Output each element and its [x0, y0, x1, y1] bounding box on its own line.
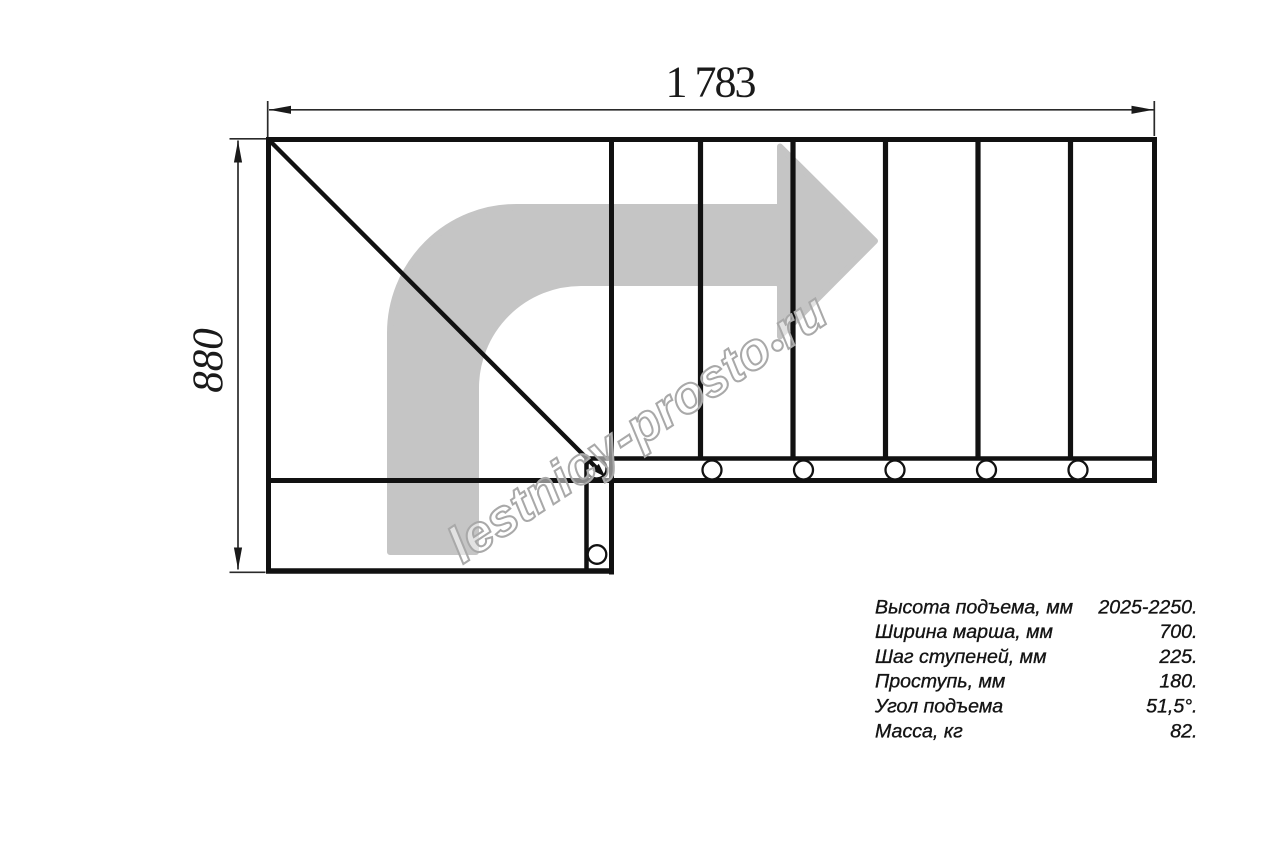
svg-text:Масса, кг: Масса, кг	[875, 720, 963, 742]
svg-text:51,5°.: 51,5°.	[1146, 696, 1197, 718]
svg-text:Ширина марша, мм: Ширина марша, мм	[875, 621, 1054, 643]
svg-text:Шаг ступеней, мм: Шаг ступеней, мм	[875, 646, 1047, 668]
svg-text:82.: 82.	[1170, 720, 1197, 742]
svg-text:2025-2250.: 2025-2250.	[1097, 596, 1197, 618]
svg-text:700.: 700.	[1159, 621, 1197, 643]
svg-text:Угол подъема: Угол подъема	[874, 696, 1003, 718]
svg-text:Проступь, мм: Проступь, мм	[875, 671, 1006, 693]
svg-text:Высота подъема, мм: Высота подъема, мм	[875, 596, 1074, 618]
svg-text:880: 880	[185, 328, 232, 393]
svg-text:180.: 180.	[1159, 671, 1197, 693]
svg-text:1 783: 1 783	[666, 58, 756, 107]
svg-text:225.: 225.	[1158, 646, 1197, 668]
